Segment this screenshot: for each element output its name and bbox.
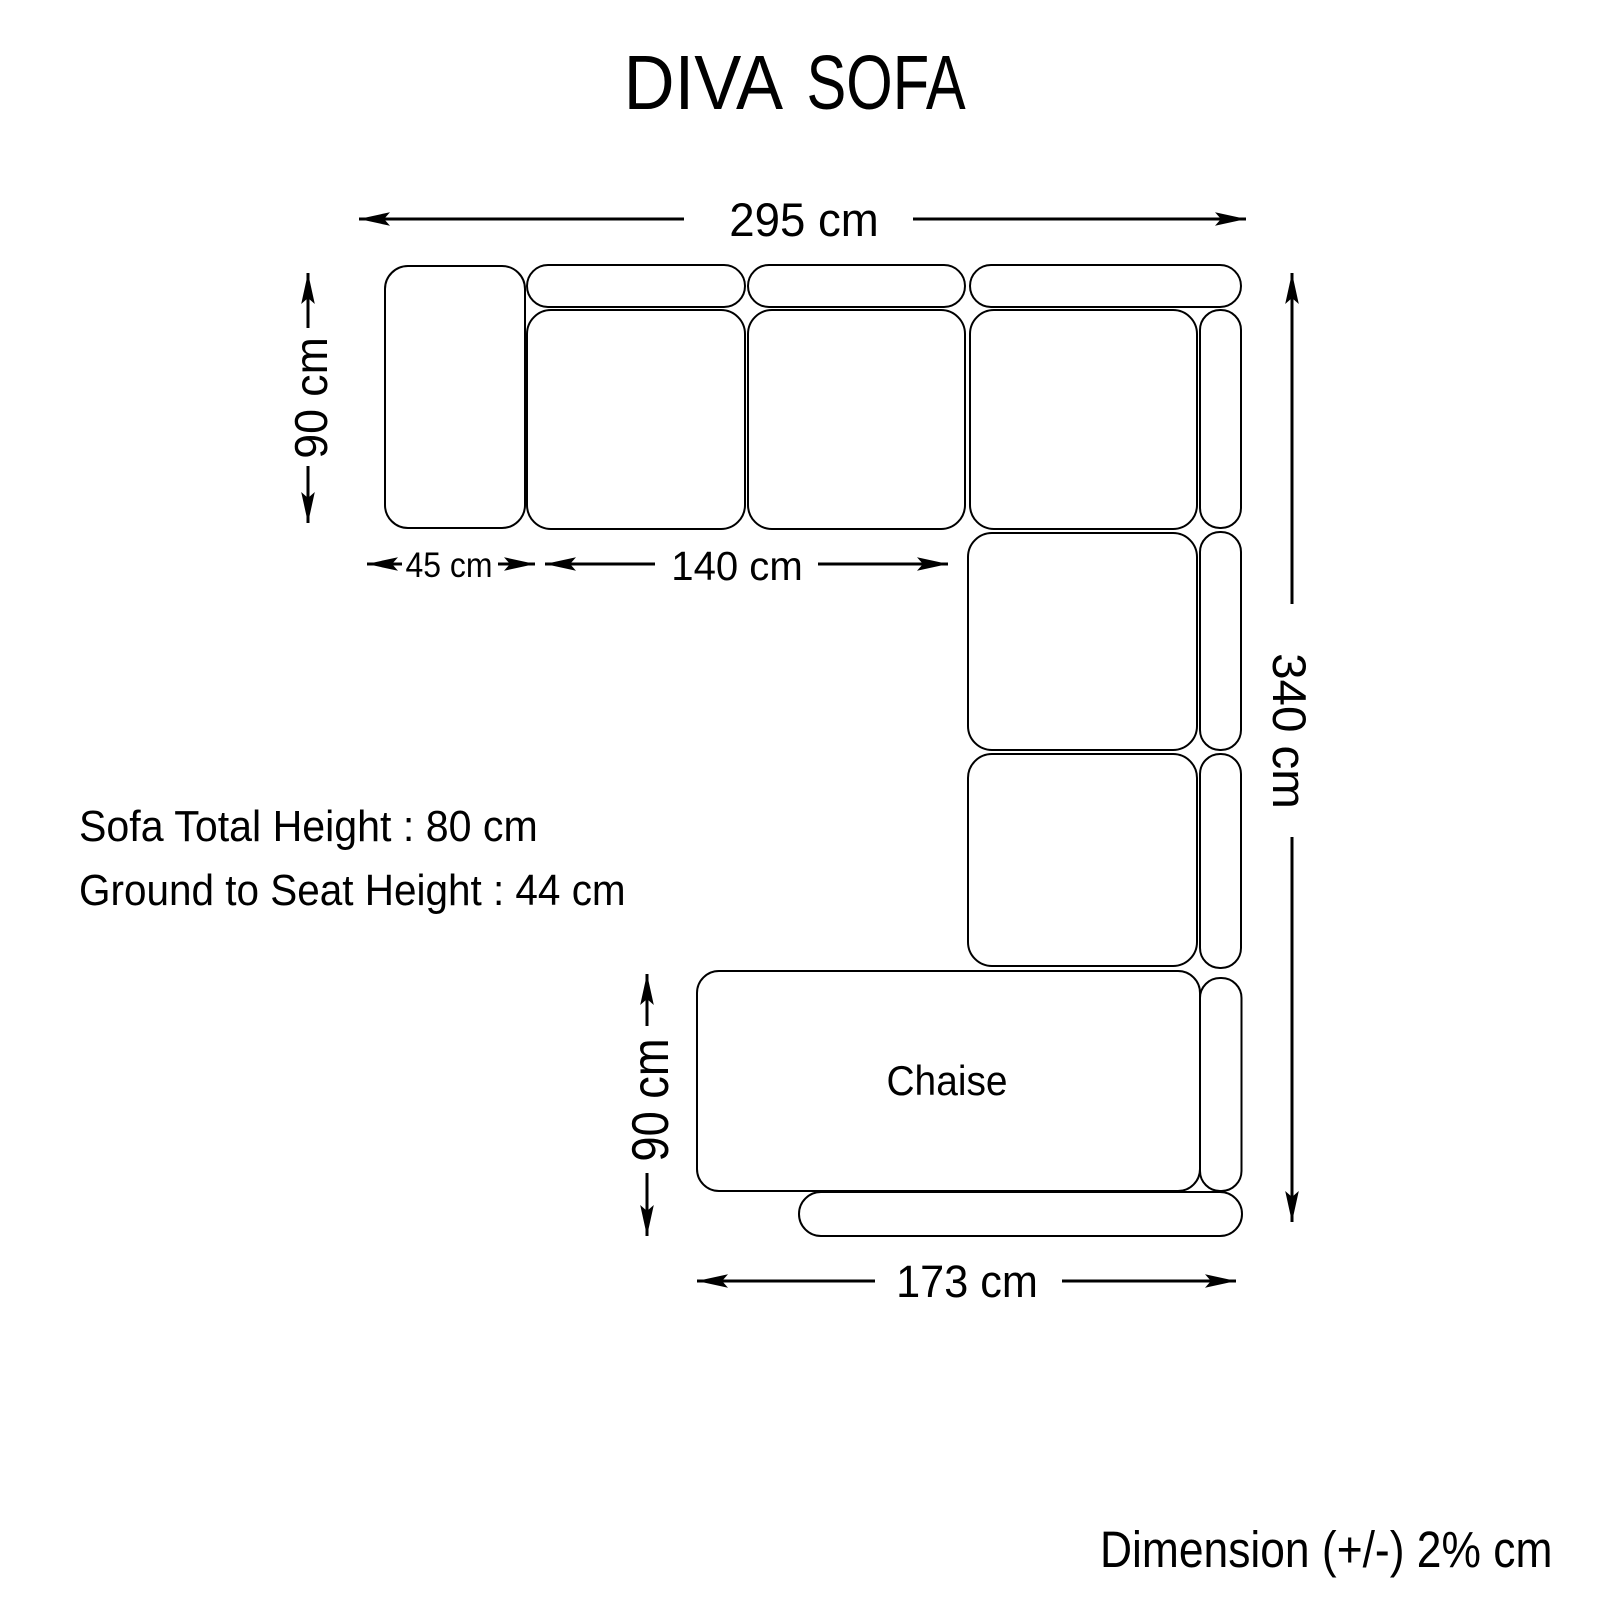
svg-text:Ground to Seat Height : 44 cm: Ground to Seat Height : 44 cm	[79, 865, 626, 914]
svg-text:90 cm: 90 cm	[285, 337, 337, 459]
svg-text:90 cm: 90 cm	[622, 1038, 680, 1161]
svg-text:295 cm: 295 cm	[729, 193, 878, 246]
svg-text:Chaise: Chaise	[886, 1057, 1007, 1105]
svg-text:Sofa Total Height : 80 cm: Sofa Total Height : 80 cm	[79, 802, 538, 852]
svg-text:140 cm: 140 cm	[671, 544, 802, 589]
svg-text:173 cm: 173 cm	[896, 1257, 1038, 1307]
svg-text:SOFA: SOFA	[807, 40, 966, 126]
svg-text:340 cm: 340 cm	[1262, 653, 1315, 809]
svg-text:Dimension (+/-) 2% cm: Dimension (+/-) 2% cm	[1100, 1522, 1552, 1579]
svg-text:DIVA: DIVA	[624, 39, 784, 126]
svg-text:45 cm: 45 cm	[406, 545, 493, 585]
